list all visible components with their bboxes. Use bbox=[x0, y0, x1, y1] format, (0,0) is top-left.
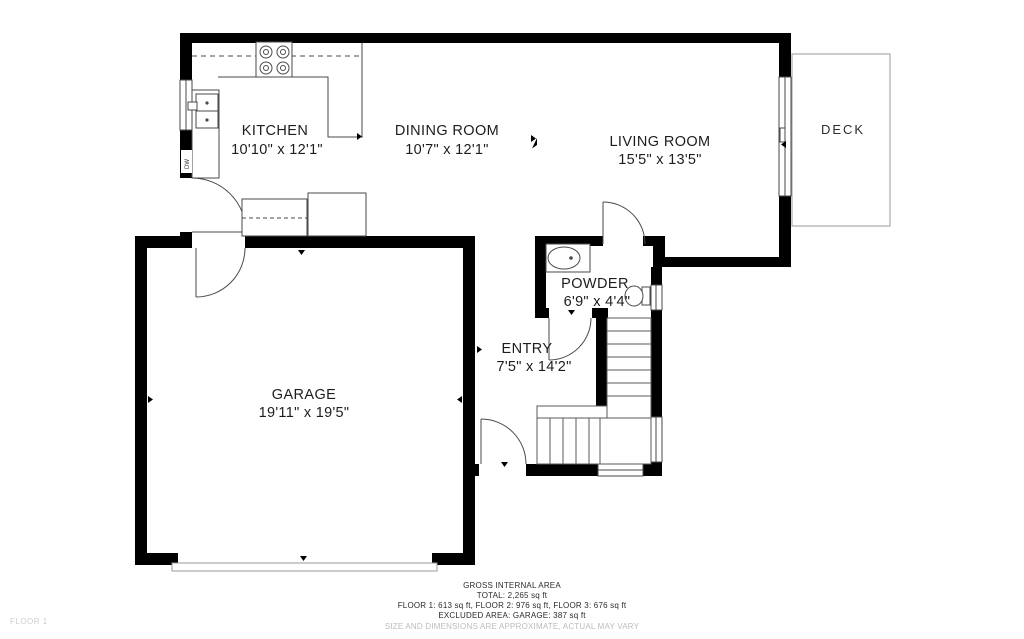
footer-total: TOTAL: 2,265 sq ft bbox=[477, 591, 548, 600]
kitchen-island bbox=[242, 193, 366, 236]
powder-window bbox=[651, 285, 662, 310]
deck-outline bbox=[792, 54, 890, 226]
front-door-arc bbox=[481, 419, 526, 464]
dining-room-dims: 10'7" x 12'1" bbox=[405, 142, 488, 158]
footer-floor-breakdown: FLOOR 1: 613 sq ft, FLOOR 2: 976 sq ft, … bbox=[398, 601, 627, 610]
deck-sliding-door bbox=[779, 77, 791, 196]
garage-dims: 19'11" x 19'5" bbox=[259, 405, 350, 421]
entry-dims: 7'5" x 14'2" bbox=[496, 359, 571, 375]
powder-sink-icon bbox=[546, 244, 590, 272]
entry-window bbox=[598, 464, 643, 476]
stairwell-window bbox=[651, 417, 662, 462]
powder-dims: 6'9" x 4'4" bbox=[564, 294, 631, 310]
stove-icon bbox=[256, 42, 292, 77]
floor-number-tag: FLOOR 1 bbox=[10, 617, 48, 626]
deck-label: DECK bbox=[821, 122, 865, 137]
living-room-label: LIVING ROOM bbox=[609, 134, 710, 150]
kitchen-dims: 10'10" x 12'1" bbox=[231, 142, 323, 158]
powder-entry-door-arc bbox=[549, 318, 591, 360]
exterior-walls bbox=[135, 33, 791, 565]
footer-excluded-area: EXCLUDED AREA: GARAGE: 387 sq ft bbox=[438, 611, 586, 620]
staircase bbox=[537, 318, 651, 464]
footer-gross-internal-area: GROSS INTERNAL AREA bbox=[463, 581, 561, 590]
kitchen-sink-icon bbox=[188, 90, 219, 178]
entry-label: ENTRY bbox=[502, 341, 553, 357]
kitchen-side-door-arc bbox=[192, 178, 246, 232]
powder-label: POWDER bbox=[561, 276, 629, 292]
footer-area-summary: GROSS INTERNAL AREA TOTAL: 2,265 sq ft F… bbox=[385, 581, 640, 631]
garage-door-panel bbox=[172, 563, 437, 571]
living-room-dims: 15'5" x 13'5" bbox=[618, 152, 701, 168]
garage-label: GARAGE bbox=[272, 387, 336, 403]
floor-plan-canvas: DW bbox=[0, 0, 1024, 639]
kitchen-label: KITCHEN bbox=[242, 123, 308, 139]
dishwasher-text: DW bbox=[185, 159, 191, 169]
garage-entry-door-arc bbox=[196, 248, 245, 297]
dishwasher-label: DW bbox=[181, 150, 192, 173]
footer-disclaimer: SIZE AND DIMENSIONS ARE APPROXIMATE, ACT… bbox=[385, 622, 640, 631]
dining-room-label: DINING ROOM bbox=[395, 123, 499, 139]
living-powder-door-arc bbox=[603, 202, 645, 244]
